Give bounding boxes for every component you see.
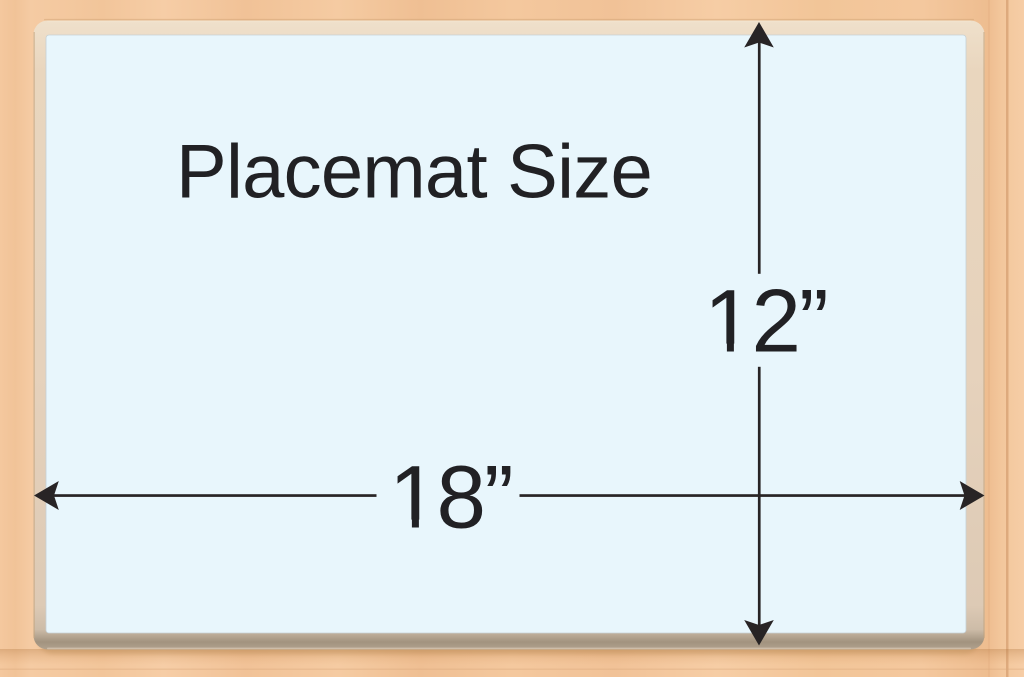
svg-text:Placemat Size: Placemat Size: [176, 130, 652, 215]
svg-text:12”: 12”: [704, 271, 827, 371]
svg-text:18”: 18”: [389, 447, 512, 547]
